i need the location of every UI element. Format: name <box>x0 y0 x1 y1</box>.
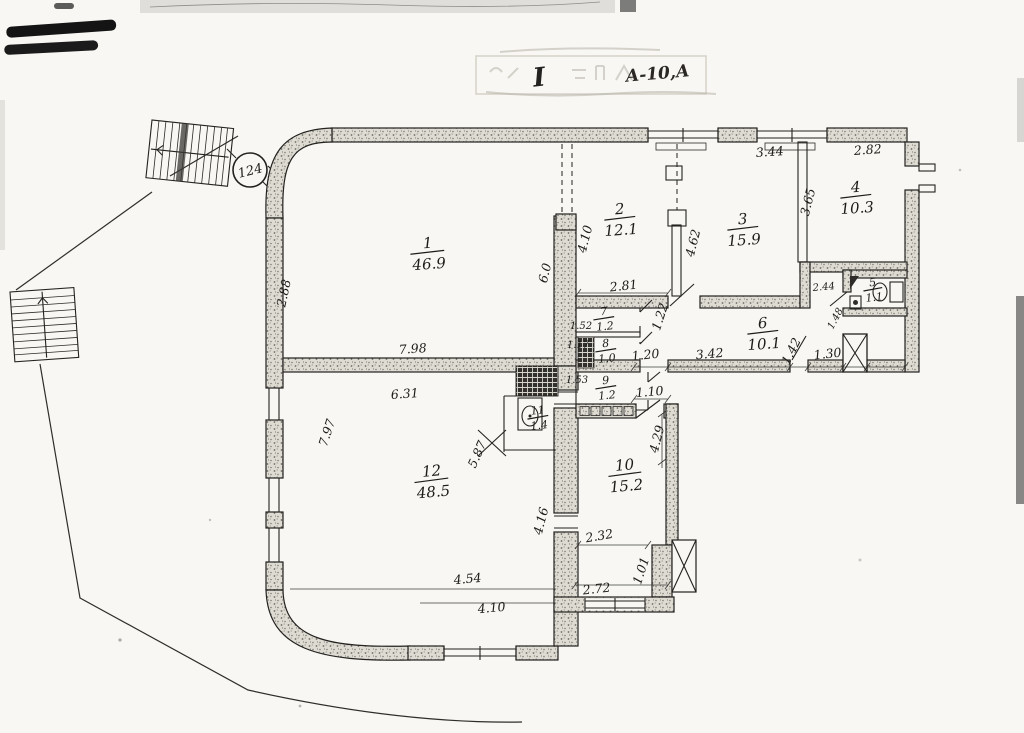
window-icon <box>648 128 718 150</box>
dim-bottom-a: 4.54 <box>452 570 482 587</box>
room-label-2: 2 12.1 <box>602 199 638 240</box>
dimension-lines <box>290 289 908 603</box>
dim-room2-bottom: 2.81 <box>608 277 638 295</box>
window-icon <box>444 646 516 660</box>
window-icon <box>266 528 283 562</box>
room-label-10: 10 15.2 <box>607 455 644 497</box>
room-label-3: 3 15.9 <box>725 209 761 250</box>
room-label-4: 4 10.3 <box>838 177 874 218</box>
room-label-8: 8 1.0 <box>594 336 617 366</box>
washbasin-icon <box>850 276 861 309</box>
dim-wc-diag: 1.48 <box>826 306 846 331</box>
room-number: 1 <box>422 234 433 253</box>
dim-room10-right: 1.01 <box>629 555 652 586</box>
room-area: 1.1 <box>865 290 884 305</box>
room-label-1: 1 46.9 <box>409 233 447 274</box>
room-area: 15.9 <box>727 230 762 250</box>
room-number: 2 <box>613 200 625 219</box>
room-number: 8 <box>602 337 610 351</box>
vent-shaft-icon <box>843 334 867 372</box>
stamp-roman-numeral: I <box>531 62 548 93</box>
dim-room10-side: 4.29 <box>646 424 668 456</box>
room-number: 6 <box>757 314 768 333</box>
scan-artifacts <box>0 0 1024 707</box>
dim-corridor-door: 1.42 <box>778 335 804 367</box>
room-area: 1.0 <box>598 351 617 365</box>
dim-room2-left: 4.10 <box>574 224 596 256</box>
room-area: 15.2 <box>609 476 644 497</box>
room-number: 5 <box>868 276 876 290</box>
dim-bottom-b: 4.10 <box>476 599 506 616</box>
room-number: 10 <box>614 455 635 475</box>
window-icon <box>266 388 283 420</box>
room-area: 12.1 <box>604 220 639 240</box>
shaft-grid-icon <box>516 366 558 396</box>
dim-room10-mid: 4.16 <box>530 506 552 538</box>
dim-room9-left: 1.53 <box>566 375 588 386</box>
scanned-floor-plan-page: I А-10,А 124 <box>0 0 1024 733</box>
room-area: 48.5 <box>415 482 451 503</box>
dim-room12-left: 7.97 <box>315 417 338 448</box>
stamp-annotation: А-10,А <box>623 61 691 87</box>
dim-corridor-b: 3.42 <box>695 345 724 362</box>
dim-room10-inner: 2.32 <box>583 526 614 546</box>
window-icon <box>585 598 645 611</box>
interior-walls <box>283 142 907 646</box>
room-label-6: 6 10.1 <box>745 313 781 354</box>
dim-room12-top: 6.31 <box>390 385 419 402</box>
room-label-9: 9 1.2 <box>594 373 617 403</box>
room-area: 1.2 <box>596 319 615 333</box>
title-stamp: I А-10,А <box>476 48 716 95</box>
dim-room4-left: 3.65 <box>797 187 818 218</box>
dim-room7-left: 1.52 <box>570 321 592 332</box>
room-number: 7 <box>600 305 608 319</box>
dim-room3-left: 4.62 <box>682 228 704 260</box>
room-area: 10.1 <box>747 334 782 354</box>
room-area: 10.3 <box>840 198 875 218</box>
window-icon <box>266 478 283 512</box>
room-label-7: 7 1.2 <box>592 304 615 334</box>
dim-corridor-a: 1.20 <box>631 346 660 364</box>
room-number: 4 <box>849 178 861 197</box>
dim-room12-diag: 5.87 <box>464 438 489 470</box>
stairs-upper-icon <box>146 120 234 186</box>
room-number: 11 <box>530 403 545 417</box>
stairs-lower-icon <box>10 288 79 362</box>
room-number: 9 <box>602 374 610 388</box>
room-number: 3 <box>737 210 748 229</box>
room-label-12: 12 48.5 <box>413 461 451 503</box>
entry-step-icon <box>919 164 935 192</box>
floor-plan-drawing: I А-10,А 124 <box>0 0 1024 733</box>
dim-hall-height: 6.0 <box>535 261 554 284</box>
dim-room8-left: 1.17 <box>567 340 590 351</box>
dim-corridor-c: 1.30 <box>813 345 842 363</box>
dim-room10-bottom: 2.72 <box>581 580 611 598</box>
room-area: 1.2 <box>598 388 617 402</box>
room-number: 12 <box>421 461 442 481</box>
dim-wc-top: 2.44 <box>811 281 835 294</box>
dim-room9-width: 1.10 <box>635 383 664 400</box>
dim-room3-top: 3.44 <box>755 143 784 160</box>
balcony-shaft-icon <box>672 540 696 592</box>
dim-room4-top: 2.82 <box>852 141 882 158</box>
bath-room11 <box>478 366 558 456</box>
dim-room1-width: 7.98 <box>398 340 427 357</box>
room-area: 46.9 <box>411 254 447 274</box>
room-area: 1.4 <box>530 418 549 433</box>
